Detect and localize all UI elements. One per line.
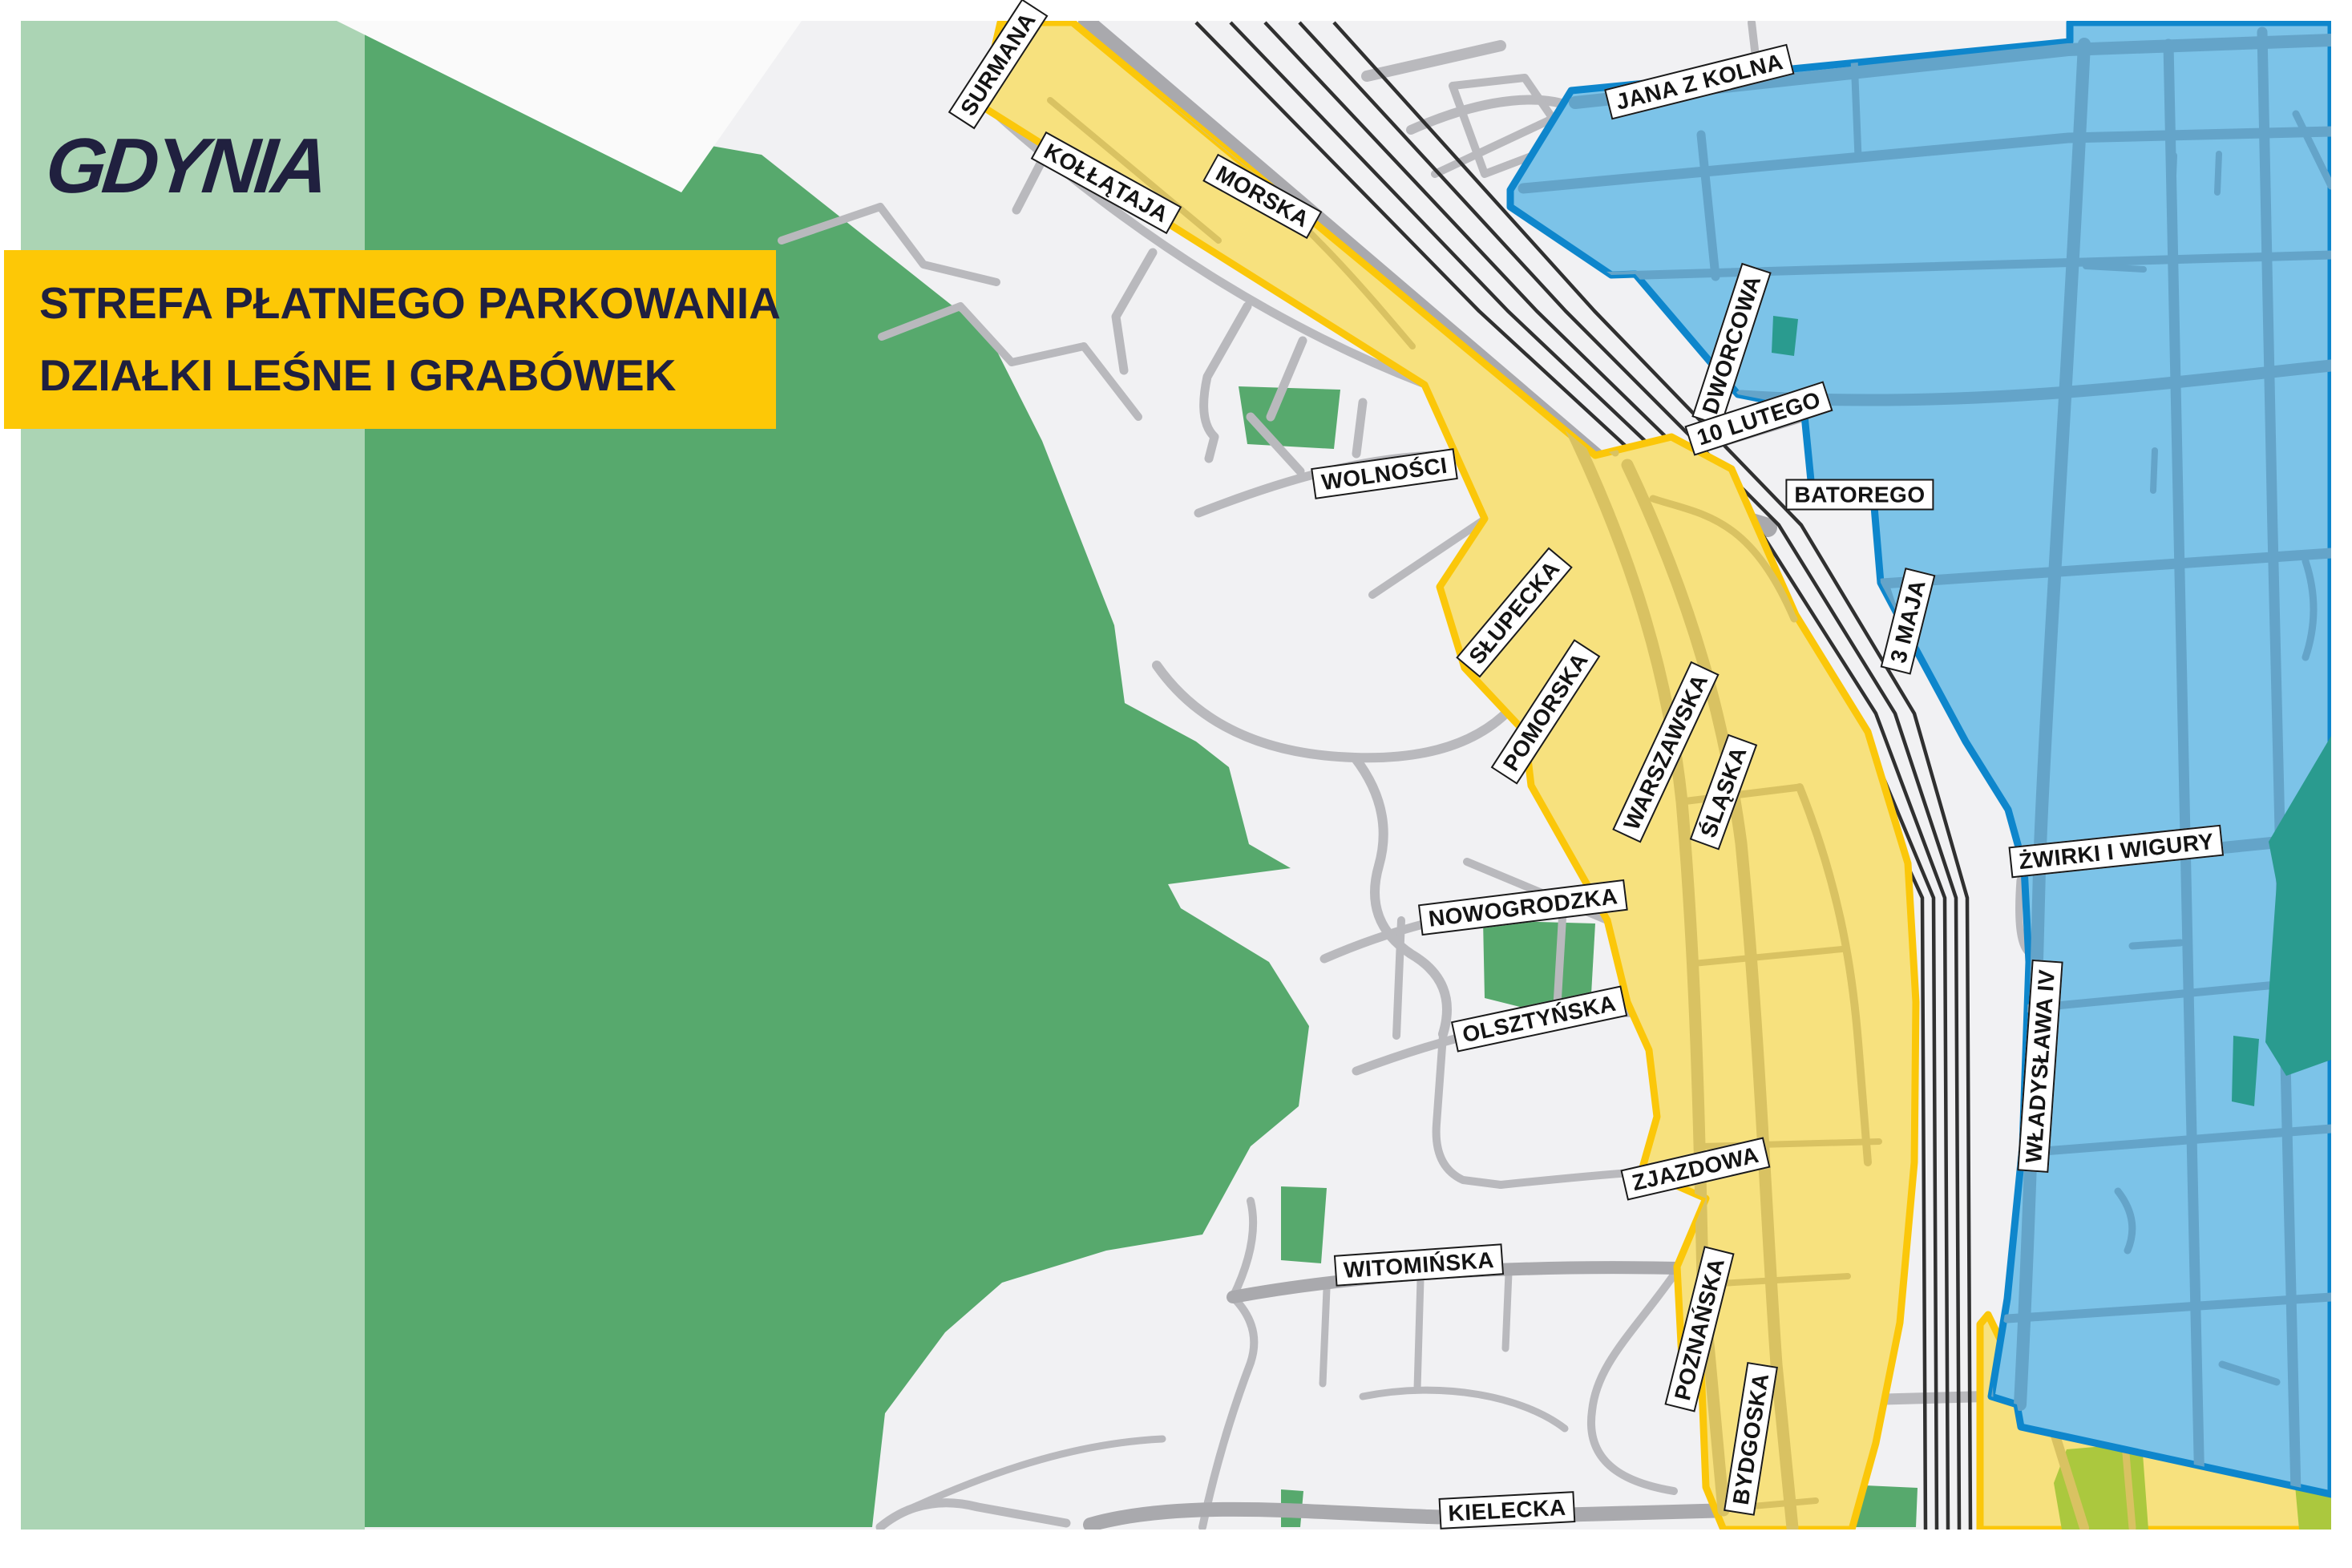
park-small-1 <box>1281 1186 1327 1263</box>
parking-zone-map-poster: GDYNIA STREFA PŁATNEGO PARKOWANIA DZIAŁK… <box>0 0 2352 1568</box>
side-strip <box>21 21 365 1530</box>
gdynia-logo: GDYNIA <box>42 127 371 204</box>
gdynia-logo-text: GDYNIA <box>42 122 329 209</box>
park-teal-small <box>2232 1036 2259 1106</box>
margin-bottom <box>0 1530 2352 1568</box>
street-label-batorego: BATOREGO <box>1785 479 1934 511</box>
margin-left <box>0 0 21 1568</box>
title-banner: STREFA PŁATNEGO PARKOWANIA DZIAŁKI LEŚNE… <box>4 250 776 429</box>
margin-top <box>0 0 2352 21</box>
margin-right <box>2331 0 2352 1568</box>
banner-line-2: DZIAŁKI LEŚNE I GRABÓWEK <box>39 340 776 411</box>
park-teal-top <box>1772 316 1798 356</box>
banner-line-1: STREFA PŁATNEGO PARKOWANIA <box>39 268 776 339</box>
map-canvas <box>0 0 2352 1568</box>
